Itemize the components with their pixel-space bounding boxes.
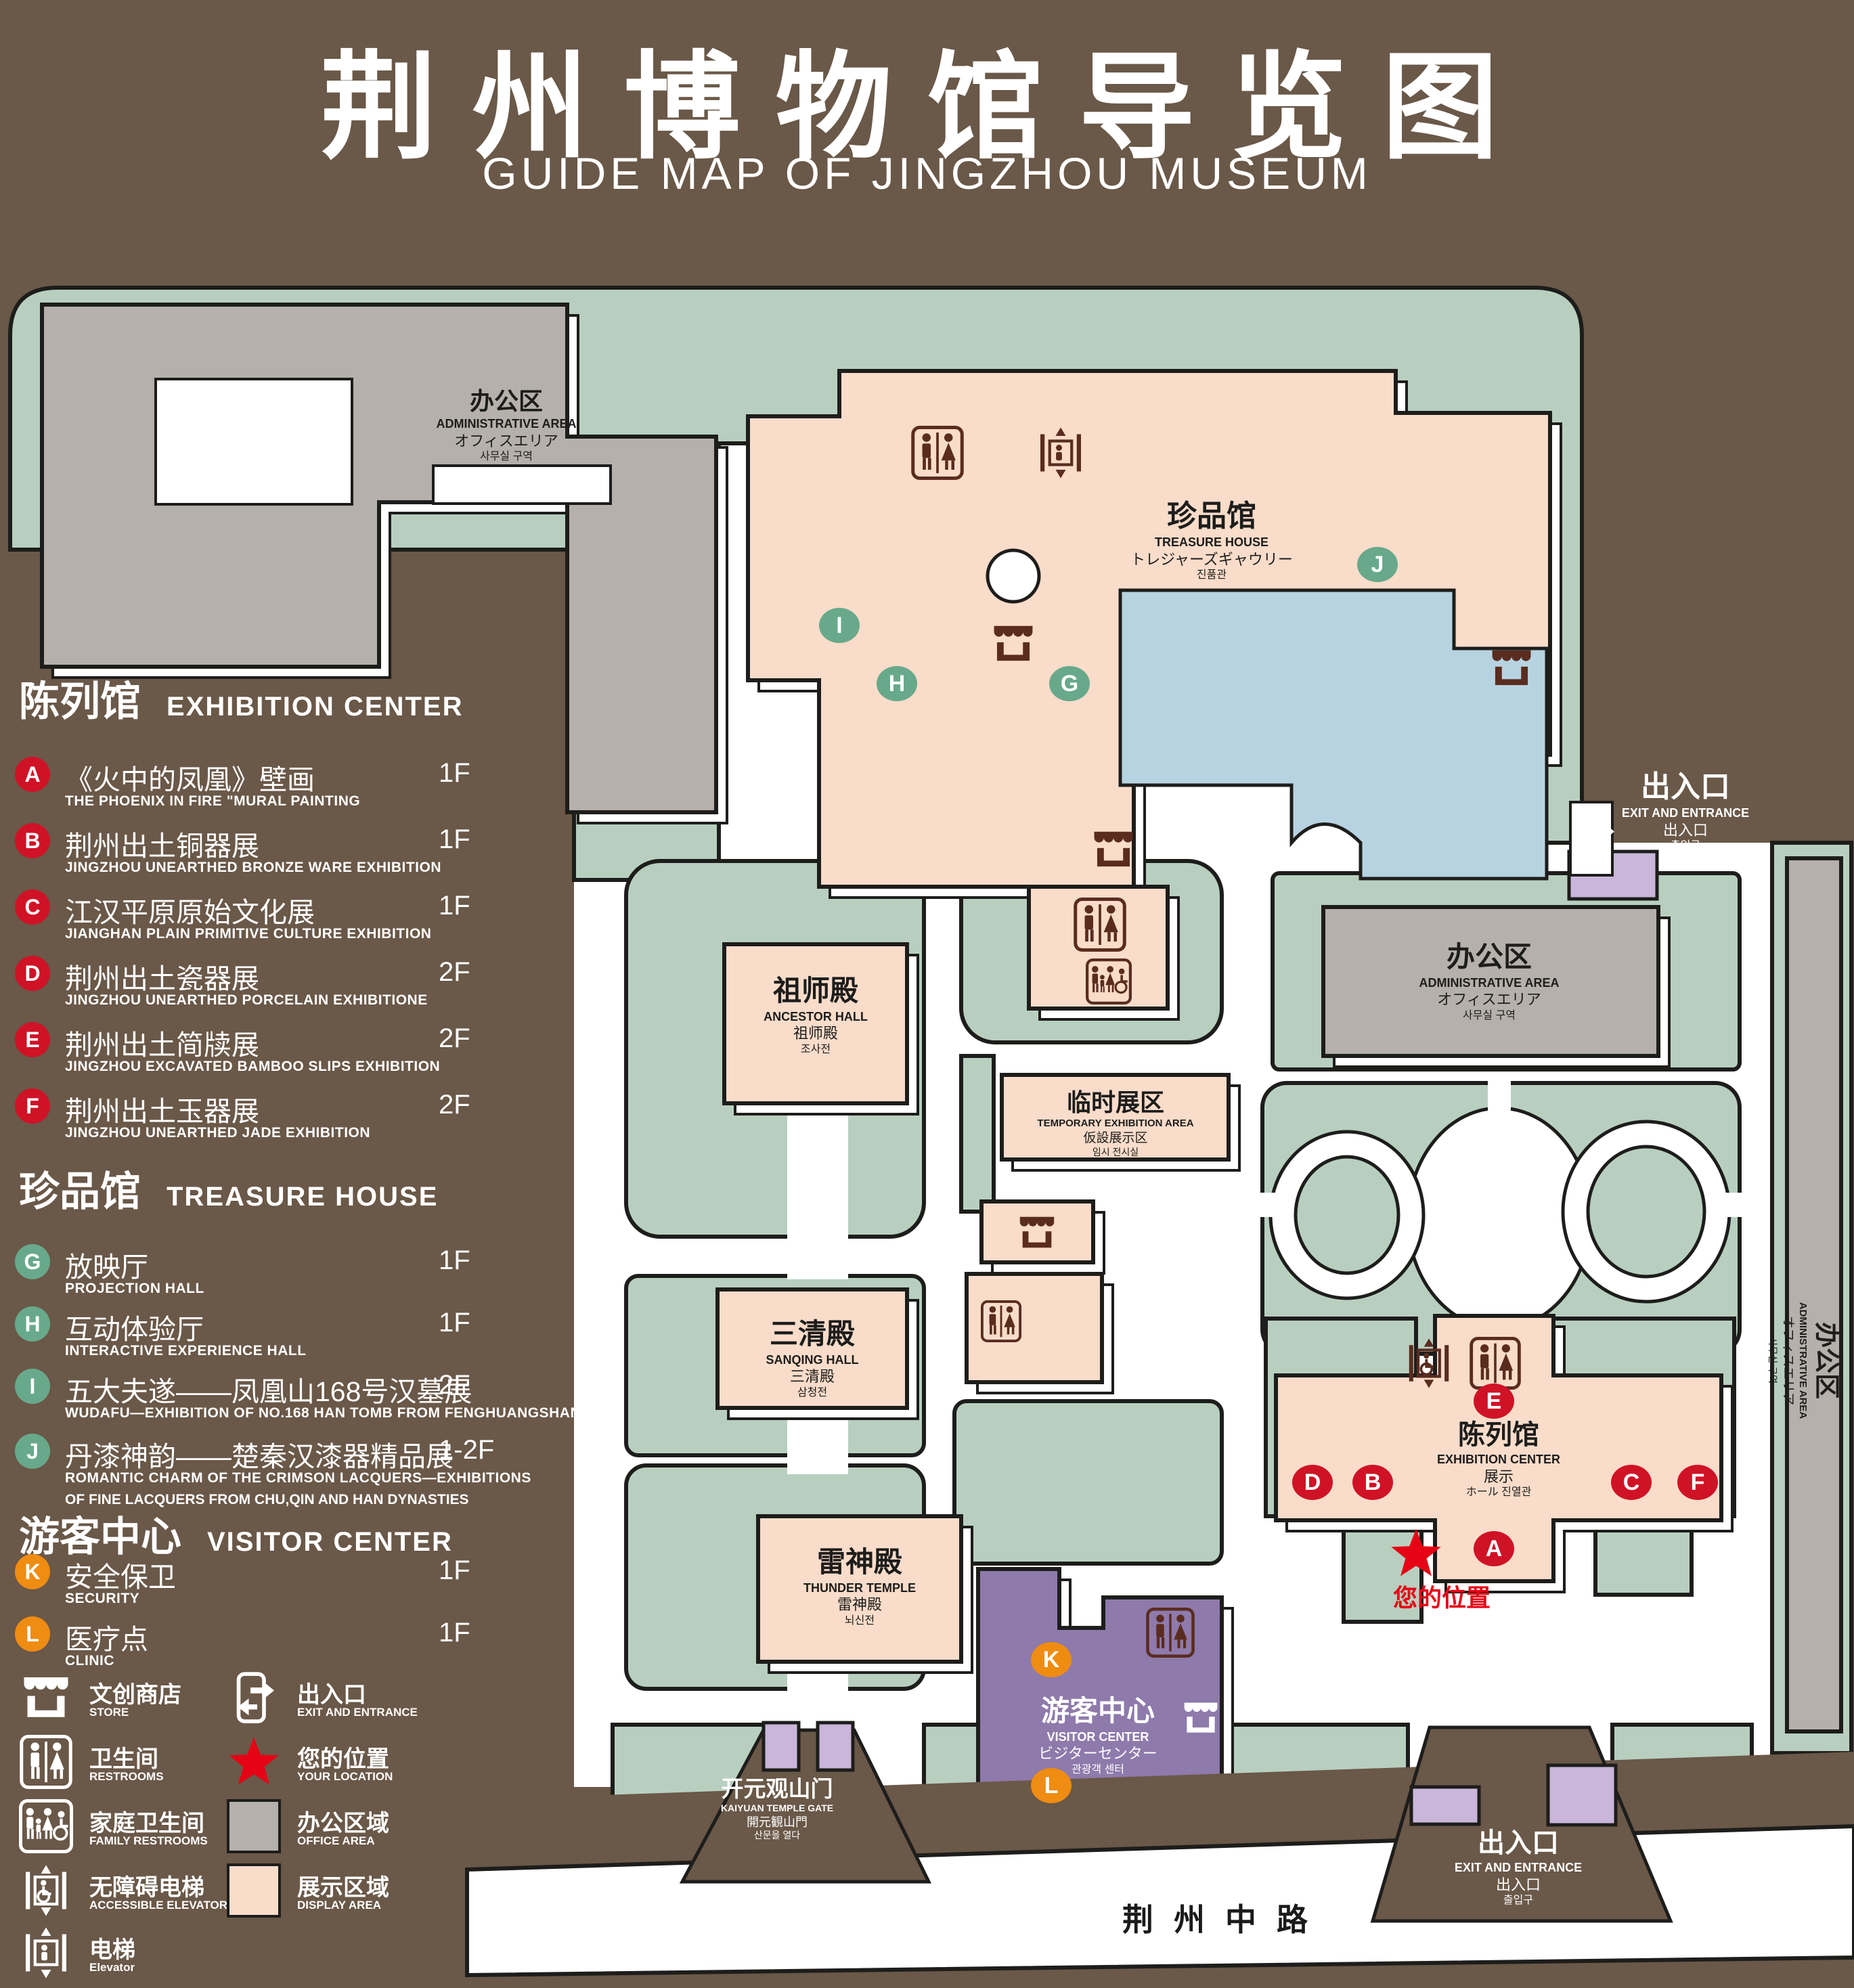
- accessible-elevator-icon: [19, 1863, 73, 1918]
- visitor-label: 游客中心VISITOR CENTER ビジターセンター관광객 센터: [1038, 1694, 1157, 1777]
- road-label: 荆州中路: [1122, 1895, 1328, 1940]
- marker-i: I: [819, 608, 860, 643]
- gate-label: 开元观山门KAIYUAN TEMPLE GATE 開元観山門산문을 열다: [721, 1775, 833, 1842]
- marker-k: K: [1031, 1642, 1072, 1677]
- family-restroom-icon: [19, 1799, 73, 1853]
- legend-item-d: D荆州出土瓷器展 JINGZHOU UNEARTHED PORCELAIN EX…: [0, 956, 528, 1030]
- garden-path-e: [1719, 1193, 1742, 1217]
- ancestor-label: 祖师殿ANCESTOR HALL 祖师殿조사전: [764, 973, 868, 1057]
- exit-bottom-pad-right: [1548, 1765, 1616, 1825]
- marker-f: F: [1677, 1465, 1718, 1500]
- admin-mid-label: 办公区ADMINISTRATIVE AREA オフィスエリア사무실 구역: [1419, 940, 1560, 1023]
- legend-item-c: C江汉平原原始文化展 JIANGHAN PLAIN PRIMITIVE CULT…: [0, 889, 528, 964]
- garden-ring-left-core: [1296, 1157, 1398, 1273]
- green-temp-sliver: [961, 1056, 994, 1212]
- gate-pillar-left: [764, 1723, 799, 1770]
- legend-item-e: E荆州出土简牍展 JINGZHOU EXCAVATED BAMBOO SLIPS…: [0, 1022, 528, 1097]
- office-area-swatch: [227, 1799, 281, 1853]
- marker-g: G: [1049, 666, 1090, 701]
- garden-path-n: [1488, 1080, 1511, 1122]
- legend-treasure-header: 珍品馆 TREASURE HOUSE: [19, 1159, 438, 1218]
- legend-item-f: F荆州出土玉器展 JINGZHOU UNEARTHED JADE EXHIBIT…: [0, 1088, 528, 1163]
- legend-item-i: I五大夫遂——凤凰山168号汉墓展 WUDAFU—EXHIBITION OF N…: [0, 1369, 528, 1443]
- marker-h: H: [877, 666, 917, 701]
- admin-right-label: 办公区ADMINISTRATIVE AREA オフィスエリア사무실 구역: [1767, 1249, 1842, 1472]
- store-block: [981, 1201, 1093, 1262]
- elevator-icon: [19, 1926, 73, 1980]
- display-area-swatch: [227, 1863, 281, 1918]
- temporary-label: 临时展区TEMPORARY EXHIBITION AREA 仮設展示区임시 전시…: [1037, 1087, 1193, 1158]
- sanqing-label: 三清殿SANQING HALL 三清殿삼청전: [766, 1317, 859, 1400]
- marker-c: C: [1611, 1465, 1652, 1500]
- treasure-door-arc: [988, 550, 1039, 602]
- garden-path-w: [1260, 1193, 1293, 1217]
- green-mid-block: [954, 1401, 1222, 1564]
- legend-item-b: B荆州出土铜器展 JINGZHOU UNEARTHED BRONZE WARE …: [0, 823, 528, 898]
- your-location-label: 您的位置: [1393, 1578, 1491, 1614]
- marker-d: D: [1292, 1465, 1333, 1500]
- legend-item-a: A《火中的凤凰》壁画 THE PHOENIX IN FIRE "MURAL PA…: [0, 757, 528, 831]
- admin-tl-courtyard: [156, 379, 352, 504]
- restrooms-icon: [19, 1735, 73, 1789]
- admin-tl-label: 办公区ADMINISTRATIVE AREA オフィスエリア사무실 구역: [437, 386, 577, 464]
- exit-icon: [227, 1671, 281, 1725]
- store-icon: [19, 1671, 73, 1725]
- thunder-label: 雷神殿THUNDER TEMPLE 雷神殿뇌신전: [803, 1545, 916, 1628]
- marker-e: E: [1474, 1384, 1514, 1419]
- legend-exhibition-header: 陈列馆 EXHIBITION CENTER: [19, 669, 463, 728]
- exit-right-label: 出入口EXIT AND ENTRANCE 出入口출입구: [1622, 768, 1749, 853]
- exit-bottom-pad-left: [1411, 1787, 1479, 1824]
- marker-l: L: [1031, 1768, 1072, 1803]
- treasure-label: 珍品馆TREASURE HOUSE トレジャーズギャウリー진품관: [1130, 498, 1293, 582]
- admin-tl-notch: [433, 466, 611, 504]
- exit-bottom-label: 出入口EXIT AND ENTRANCE 出入口출입구: [1455, 1826, 1582, 1907]
- gate-pillar-right: [818, 1723, 853, 1770]
- mid-pink-block: [967, 1274, 1102, 1382]
- path-ancestor: [787, 1102, 848, 1279]
- your-location-star: [227, 1735, 281, 1789]
- legend-item-j: J丹漆神韵——楚秦汉漆器精品展 ROMANTIC CHARM OF THE CR…: [0, 1434, 528, 1508]
- marker-a: A: [1474, 1531, 1514, 1566]
- garden-ring-right-core: [1588, 1147, 1704, 1277]
- exhibition-label: 陈列馆 EXHIBITION CENTER 展示 ホール 진열관: [1437, 1418, 1560, 1499]
- marker-b: B: [1352, 1465, 1393, 1500]
- marker-j: J: [1357, 547, 1398, 582]
